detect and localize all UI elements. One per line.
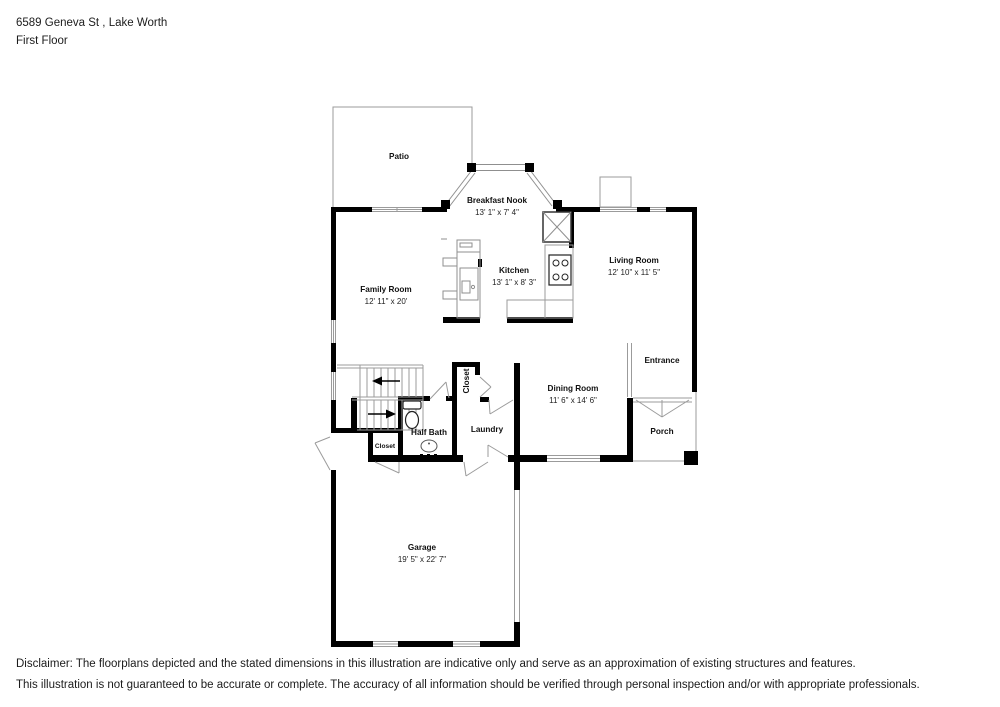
floorplan-drawing: Patio Breakfast Nook 13' 1" x 7' 4" Kitc… [0,0,1000,707]
room-dims-garage: 19' 5" x 22' 7" [398,555,446,564]
disclaimer: Disclaimer: The floorplans depicted and … [16,654,986,695]
room-label-stair-closet: Closet [375,443,396,450]
room-label-dining-room: Dining Room [548,384,599,393]
disclaimer-line-1: Disclaimer: The floorplans depicted and … [16,654,986,675]
laundry-top-door-swing [489,400,513,414]
room-label-entrance: Entrance [644,356,679,365]
stairs-down-arrow-icon [368,410,396,419]
stairs-up-arrow-icon [372,377,400,386]
room-label-hall-closet: Closet [462,368,471,393]
room-label-living-room: Living Room [609,256,659,265]
room-dims-kitchen: 13' 1" x 8' 3" [492,278,536,287]
room-label-half-bath: Half Bath [411,428,447,437]
room-label-patio: Patio [389,152,409,161]
bathroom-sink-icon [420,440,437,459]
entrance-partition [628,343,632,397]
address-text: 6589 Geneva St , Lake Worth [16,14,167,32]
room-dims-family-room: 12' 11" x 20' [365,297,408,306]
hall-closet-door-swing [480,377,491,397]
floorplan-page: 6589 Geneva St , Lake Worth First Floor [0,0,1000,707]
exterior-side-door-swing [315,437,330,470]
disclaimer-line-2: This illustration is not guaranteed to b… [16,675,986,696]
room-dims-living-room: 12' 10" x 11' 5" [608,268,660,277]
toilet-icon [403,401,421,429]
stove-icon [549,255,571,285]
room-dims-breakfast-nook: 13' 1" x 7' 4" [475,208,519,217]
floor-label: First Floor [16,32,167,50]
stair-closet-door-swing [375,462,399,473]
garage-entry-door-swing [464,462,488,476]
laundry-bottom-door-swing [488,445,508,457]
plan-header: 6589 Geneva St , Lake Worth First Floor [16,14,167,50]
room-label-porch: Porch [650,427,673,436]
room-label-kitchen: Kitchen [499,266,529,275]
room-dims-dining-room: 11' 6" x 14' 6" [549,396,597,405]
refrigerator-icon [543,212,571,242]
room-label-garage: Garage [408,543,437,552]
room-label-breakfast-nook: Breakfast Nook [467,196,528,205]
fireplace-bump [600,177,631,207]
front-door-icon [636,400,689,417]
room-label-family-room: Family Room [360,285,411,294]
room-label-laundry: Laundry [471,425,504,434]
kitchen-island-sink-icon [441,239,480,318]
